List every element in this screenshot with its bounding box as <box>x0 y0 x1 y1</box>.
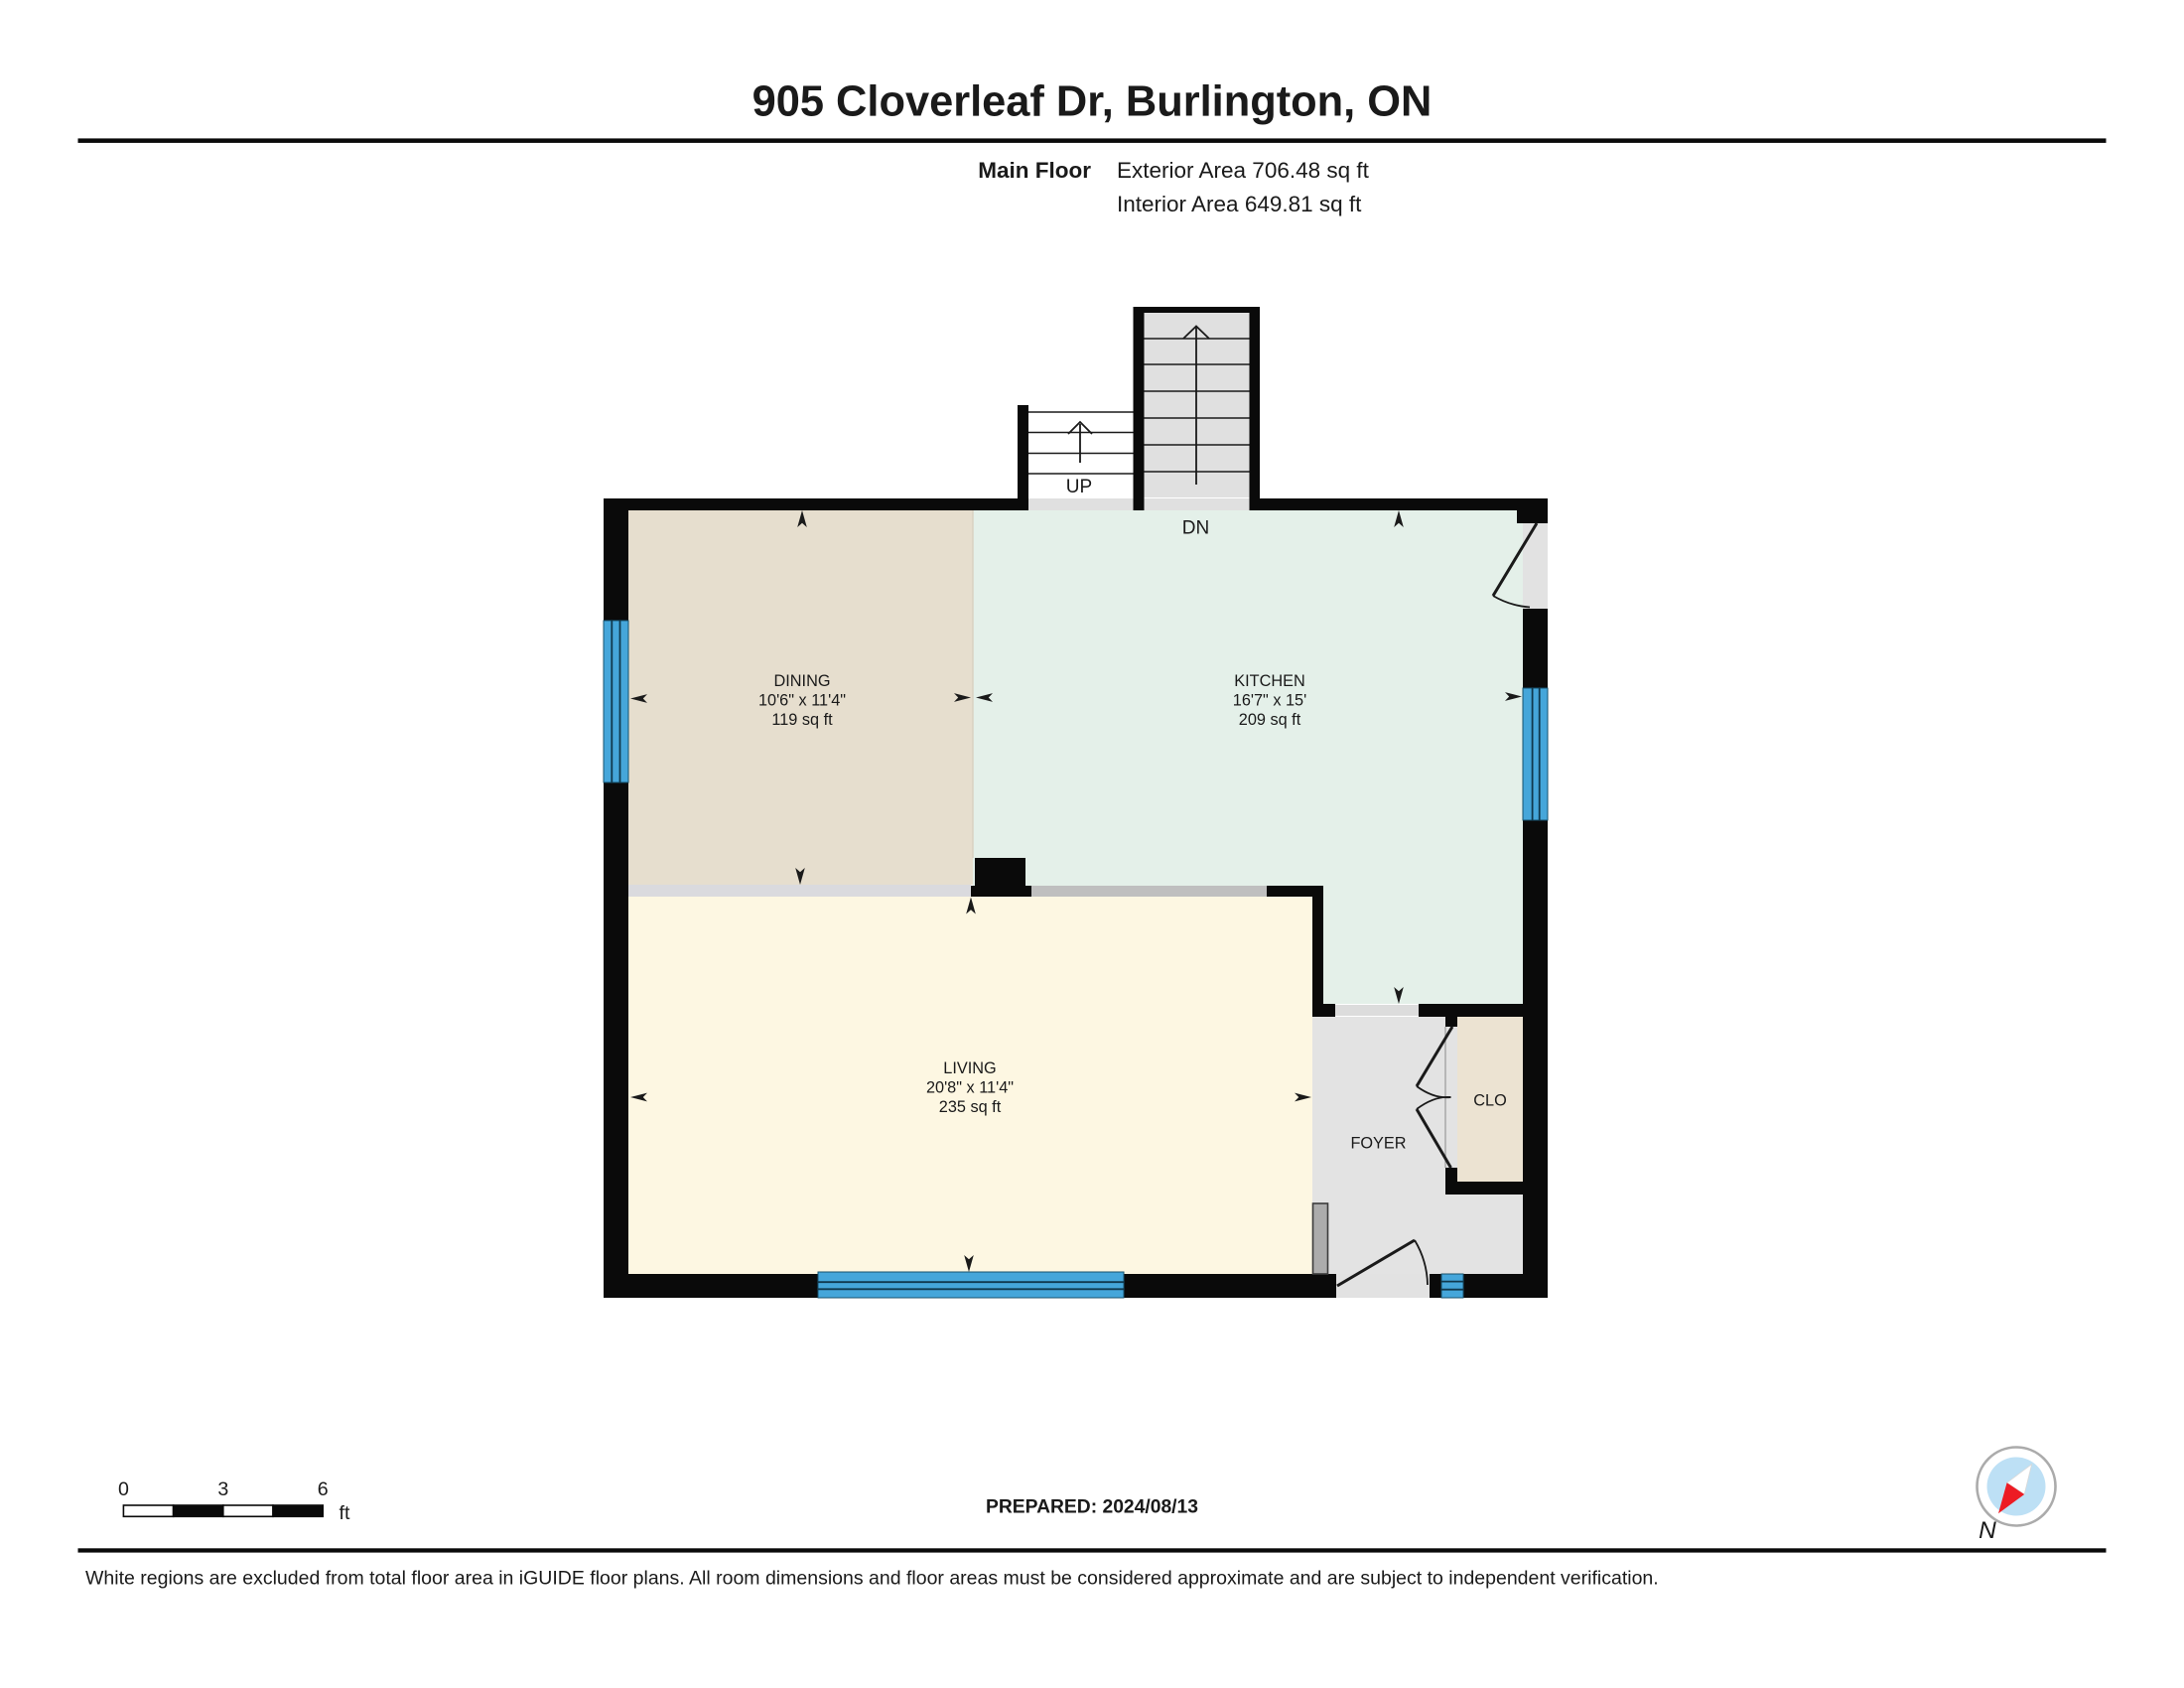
svg-text:White regions are excluded fro: White regions are excluded from total fl… <box>85 1568 1659 1590</box>
svg-text:ft: ft <box>340 1502 350 1524</box>
svg-text:119 sq ft: 119 sq ft <box>771 711 833 729</box>
svg-text:0: 0 <box>118 1478 129 1500</box>
svg-text:LIVING: LIVING <box>943 1059 996 1077</box>
svg-text:Exterior Area 706.48 sq ft: Exterior Area 706.48 sq ft <box>1117 158 1370 183</box>
svg-text:235 sq ft: 235 sq ft <box>939 1098 1002 1116</box>
svg-text:6: 6 <box>318 1478 329 1500</box>
svg-text:UP: UP <box>1066 477 1092 497</box>
svg-text:Interior Area 649.81 sq ft: Interior Area 649.81 sq ft <box>1117 192 1362 216</box>
svg-text:209 sq ft: 209 sq ft <box>1239 711 1301 729</box>
svg-text:10'6" x 11'4": 10'6" x 11'4" <box>758 692 846 710</box>
svg-text:CLO: CLO <box>1473 1092 1506 1110</box>
svg-text:KITCHEN: KITCHEN <box>1234 672 1304 690</box>
svg-text:PREPARED: 2024/08/13: PREPARED: 2024/08/13 <box>986 1497 1198 1518</box>
svg-text:905 Cloverleaf Dr, Burlington,: 905 Cloverleaf Dr, Burlington, ON <box>752 78 1433 126</box>
svg-text:3: 3 <box>217 1478 228 1500</box>
svg-text:N: N <box>1979 1517 1996 1544</box>
svg-text:FOYER: FOYER <box>1350 1135 1406 1153</box>
svg-text:DN: DN <box>1182 518 1209 539</box>
svg-text:DINING: DINING <box>774 672 831 690</box>
svg-text:20'8" x 11'4": 20'8" x 11'4" <box>926 1079 1014 1097</box>
svg-text:16'7" x 15': 16'7" x 15' <box>1233 692 1306 710</box>
svg-text:Main Floor: Main Floor <box>978 158 1091 183</box>
